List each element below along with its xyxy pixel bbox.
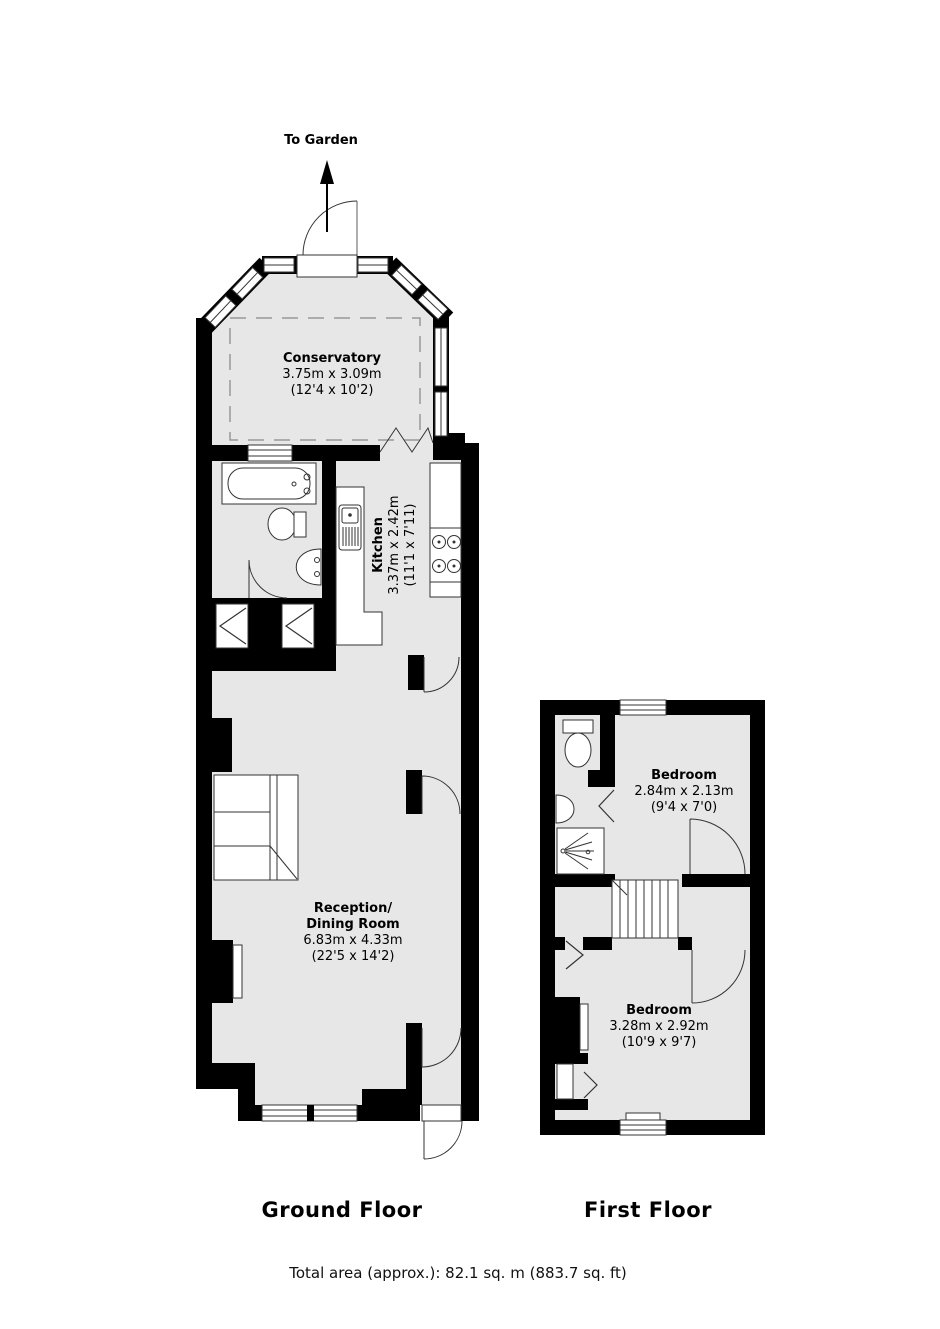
stairs-upper-icon xyxy=(612,880,678,938)
bedroom-front-dims-m: 2.84m x 2.13m xyxy=(594,784,774,800)
reception-dims-m: 6.83m x 4.33m xyxy=(253,933,453,949)
toilet-icon xyxy=(268,508,306,540)
conservatory-dims-m: 3.75m x 3.09m xyxy=(242,367,422,383)
reception-dims-ft: (22'5 x 14'2) xyxy=(253,949,453,965)
bedroom-back-name: Bedroom xyxy=(569,1003,749,1019)
kitchen-label: Kitchen 3.37m x 2.42m (11'1 x 7'11) xyxy=(371,470,419,620)
kitchen-name: Kitchen xyxy=(371,470,387,620)
shower-icon xyxy=(557,828,604,874)
first-floor-caption: First Floor xyxy=(528,1198,768,1222)
bedroom-front-dims-ft: (9'4 x 7'0) xyxy=(594,800,774,816)
ground-floor-plan xyxy=(196,160,479,1159)
hob-icon xyxy=(430,528,461,582)
kitchen-sink-icon xyxy=(339,505,361,550)
total-area-text: Total area (approx.): 82.1 sq. m (883.7 … xyxy=(158,1264,758,1282)
bedroom-back-dims-m: 3.28m x 2.92m xyxy=(569,1019,749,1035)
conservatory-name: Conservatory xyxy=(242,351,422,367)
kitchen-dims-m: 3.37m x 2.42m xyxy=(387,470,403,620)
reception-name-2: Dining Room xyxy=(253,917,453,933)
reception-label: Reception/ Dining Room 6.83m x 4.33m (22… xyxy=(253,901,453,965)
first-floor-plan xyxy=(540,700,765,1135)
floor-plan-svg xyxy=(0,0,940,1329)
to-garden-label: To Garden xyxy=(241,133,401,148)
floorplan-page: To Garden Conservatory 3.75m x 3.09m (12… xyxy=(0,0,940,1329)
reception-name-1: Reception/ xyxy=(253,901,453,917)
bath-icon xyxy=(222,463,316,504)
bedroom-back-dims-ft: (10'9 x 9'7) xyxy=(569,1035,749,1051)
bedroom-front-label: Bedroom 2.84m x 2.13m (9'4 x 7'0) xyxy=(594,768,774,816)
kitchen-dims-ft: (11'1 x 7'11) xyxy=(403,470,419,620)
front-door xyxy=(422,1105,462,1159)
garden-arrow-icon xyxy=(320,160,334,232)
toilet-upstairs-icon xyxy=(563,720,593,767)
conservatory-dims-ft: (12'4 x 10'2) xyxy=(242,383,422,399)
conservatory-label: Conservatory 3.75m x 3.09m (12'4 x 10'2) xyxy=(242,351,422,399)
ground-floor-caption: Ground Floor xyxy=(222,1198,462,1222)
bedroom-back-label: Bedroom 3.28m x 2.92m (10'9 x 9'7) xyxy=(569,1003,749,1051)
bedroom-front-name: Bedroom xyxy=(594,768,774,784)
stairs-ground-icon xyxy=(214,775,298,880)
